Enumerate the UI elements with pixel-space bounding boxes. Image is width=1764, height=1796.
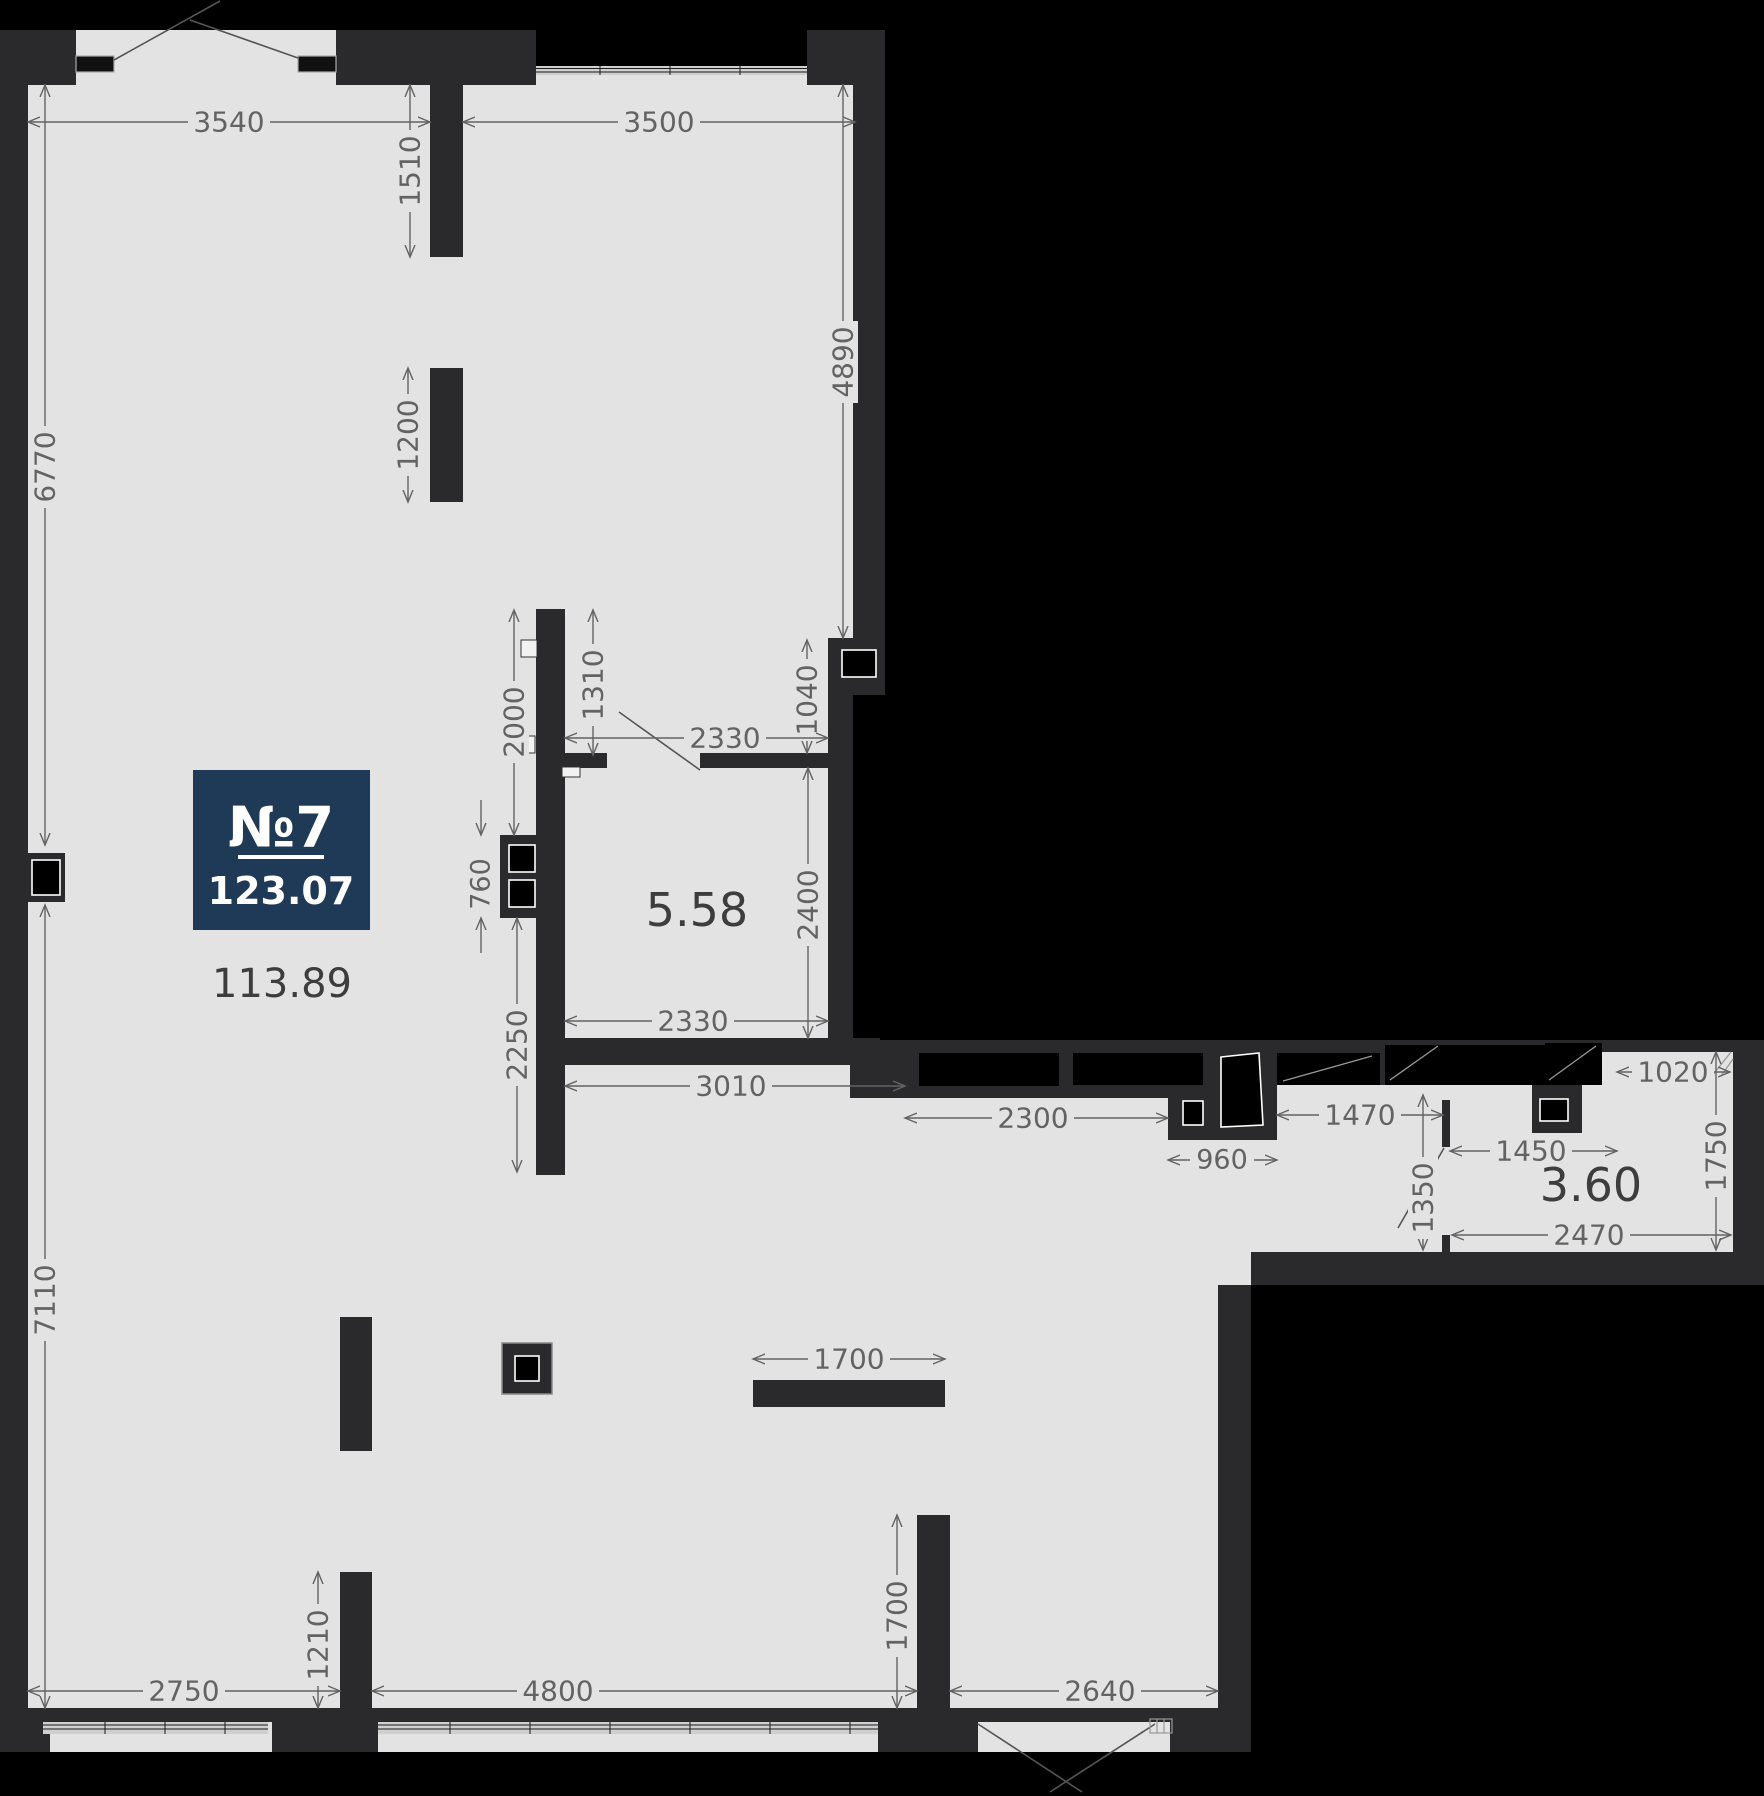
wall-stub-1210 (340, 1572, 372, 1708)
room-area-label-hall: 3.60 (1540, 1158, 1642, 1212)
wall-top-middle (336, 30, 536, 85)
wall-stub-1200 (430, 368, 463, 502)
dimension-label: 2000 (498, 686, 531, 757)
wall-left (0, 30, 28, 1752)
wall-bathroom-bottom (536, 1038, 880, 1065)
wall-bottom-block-2 (878, 1708, 978, 1752)
door-jamb-right (298, 56, 336, 72)
room-area-label-bathroom: 5.58 (646, 883, 748, 937)
heater-icon-2 (509, 880, 535, 907)
dimension-label: 4800 (522, 1675, 593, 1708)
dimension-label: 1750 (1700, 1120, 1733, 1191)
vent-shaft-icon-small (1183, 1101, 1203, 1125)
shaft-icon-jut (842, 650, 876, 677)
dimension-label: 3500 (623, 106, 694, 139)
dimension-label: 1310 (577, 649, 610, 720)
dimension-label: 1350 (1407, 1162, 1440, 1233)
dimension-label: 1020 (1637, 1056, 1708, 1089)
dimension-label: 3540 (193, 106, 264, 139)
wall-bottom-right (1218, 1285, 1251, 1752)
unit-total-area: 123.07 (208, 869, 355, 913)
heater-icon-1 (509, 845, 535, 872)
dimension-label: 7110 (29, 1264, 62, 1335)
window-top-glass (536, 30, 807, 66)
wall-hall-top (1602, 1040, 1733, 1052)
wall-stub-lower-1 (340, 1317, 372, 1451)
niche-4 (1385, 1045, 1545, 1085)
room-area-label-main: 113.89 (212, 961, 352, 1007)
door-frame-plate-1 (521, 640, 537, 657)
niche-2 (1073, 1053, 1203, 1085)
wall-stub-1510 (430, 85, 463, 257)
dimension-label: 760 (466, 858, 497, 910)
dimension-label: 2330 (689, 722, 760, 755)
floor-plan-svg: 3540 3500 1510 1200 6770 4890 2000 1310 … (0, 0, 1764, 1796)
dimension-label: 960 (1196, 1145, 1248, 1176)
niche-1 (919, 1053, 1059, 1086)
dimension-label: 1040 (791, 664, 824, 735)
wall-bathroom-door-left (565, 753, 607, 768)
wall-bathroom-right (828, 695, 853, 1065)
wall-island-1700 (753, 1380, 945, 1407)
wall-hall-divider-top (1442, 1100, 1450, 1147)
floor-plan-page: 3540 3500 1510 1200 6770 4890 2000 1310 … (0, 0, 1764, 1796)
wall-pier-1700 (917, 1515, 950, 1708)
dimension-label: 2330 (657, 1005, 728, 1038)
unit-number: №7 (228, 796, 334, 861)
dimension-label: 2400 (792, 869, 825, 940)
dimension-label: 2250 (501, 1009, 534, 1080)
wall-top-corner (0, 30, 76, 85)
door-jamb-left (76, 56, 114, 72)
vent-shaft-icon-big (1221, 1053, 1263, 1127)
window-bottom-frame-1 (43, 1722, 268, 1734)
dimension-label: 3010 (695, 1070, 766, 1103)
hall-shaft-icon (1540, 1099, 1568, 1121)
dimension-label: 1470 (1324, 1099, 1395, 1132)
wall-bottom-block-3 (1170, 1708, 1251, 1752)
door-frame-plate-3 (562, 767, 580, 777)
window-hall (1545, 1043, 1602, 1085)
dimension-label: 1700 (813, 1343, 884, 1376)
unit-badge: №7 123.07 (193, 770, 370, 930)
dimension-label: 1210 (302, 1609, 335, 1680)
wall-bathroom-door-right (700, 753, 828, 768)
radiator-icon (32, 860, 60, 895)
dimension-label: 6770 (29, 431, 62, 502)
wall-bottom-band (0, 1708, 1251, 1722)
wall-hall-divider-bottom (1442, 1235, 1450, 1252)
unit-badge-divider (238, 855, 324, 859)
window-bottom-frame-2 (378, 1722, 878, 1734)
column-shaft-icon (515, 1356, 539, 1381)
dimension-label: 1510 (394, 135, 427, 206)
dimension-label: 2640 (1064, 1675, 1135, 1708)
dimension-label: 2750 (148, 1675, 219, 1708)
wall-bottom-corner-left (0, 1708, 50, 1752)
wall-bottom-block-1 (272, 1708, 378, 1752)
dimension-label: 1700 (881, 1580, 914, 1651)
dimension-label: 2470 (1553, 1219, 1624, 1252)
wall-arm-bottom (1251, 1252, 1764, 1285)
wall-right-arm (1733, 1040, 1764, 1285)
dimension-label: 2300 (997, 1102, 1068, 1135)
dimension-label: 4890 (827, 326, 860, 397)
dimension-label: 1200 (392, 399, 425, 470)
window-top-frame (536, 66, 807, 75)
